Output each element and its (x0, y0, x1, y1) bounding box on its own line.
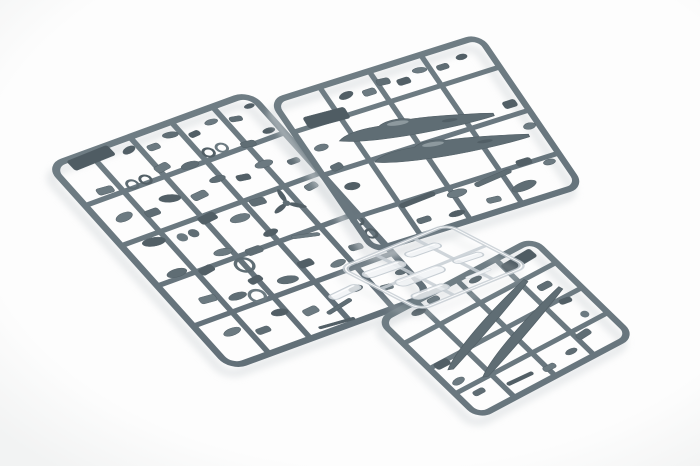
model-kit-sprues-photo (0, 0, 700, 466)
screenshot-root (0, 0, 700, 466)
